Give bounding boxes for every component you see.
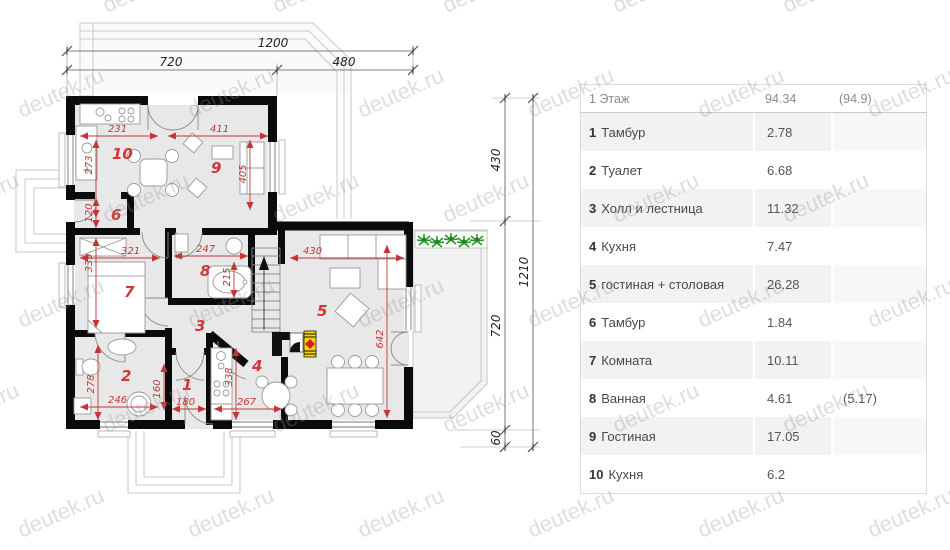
coffee-table-room5 <box>330 268 360 288</box>
washer-room2 <box>127 392 151 416</box>
row-room-area-alt <box>833 455 926 493</box>
table-row: 7 Комната 10.11 <box>581 341 926 379</box>
dim-430i: 430 <box>303 246 322 257</box>
sink-room8 <box>226 238 242 254</box>
row-room-number: 7 <box>589 353 596 368</box>
row-room-area-alt <box>833 341 926 379</box>
dim-720-right: 720 <box>489 314 503 337</box>
room-label-10: 10 <box>112 145 133 163</box>
table-row: 8 Ванная 4.61 (5.17) <box>581 379 926 417</box>
dim-720-top: 720 <box>160 55 183 69</box>
row-room-area: 7.47 <box>755 227 831 265</box>
dining-table-room5 <box>327 356 383 417</box>
porch-bottom <box>128 431 240 493</box>
row-room-area-alt <box>833 265 926 303</box>
table-row: 9 Гостиная 17.05 <box>581 417 926 455</box>
dim-411: 411 <box>210 124 229 135</box>
table-row: 5 гостиная + столовая 26.28 <box>581 265 926 303</box>
row-room-number: 2 <box>589 163 596 178</box>
toilet-room2 <box>76 359 100 375</box>
row-room-number: 4 <box>589 239 596 254</box>
dim-1210: 1210 <box>517 256 531 287</box>
row-room-name: Тамбур <box>601 315 645 330</box>
dim-278: 278 <box>86 374 97 393</box>
dim-246: 246 <box>108 395 127 406</box>
row-room-number: 1 <box>589 125 596 140</box>
sink-room2 <box>74 398 91 414</box>
dim-60: 60 <box>489 430 503 446</box>
row-room-number: 10 <box>589 467 603 482</box>
row-room-name: Ванная <box>601 391 646 406</box>
row-room-name: Туалет <box>601 163 642 178</box>
room-label-7: 7 <box>124 283 135 301</box>
row-room-number: 6 <box>589 315 596 330</box>
dim-430: 430 <box>489 148 503 171</box>
washbasin-room2 <box>108 339 136 355</box>
area-table: 1 Этаж 94.34 (94.9) 1 Тамбур 2.78 2 Туал… <box>580 84 927 494</box>
row-room-area: 2.78 <box>755 113 831 151</box>
row-room-area-alt <box>833 303 926 341</box>
wardrobe-room7 <box>80 238 126 256</box>
floor-total-area: 94.34 <box>753 92 829 106</box>
dim-247: 247 <box>196 244 216 255</box>
dim-215: 215 <box>222 267 233 286</box>
dim-273: 273 <box>84 155 95 174</box>
row-room-area: 10.11 <box>755 341 831 379</box>
area-table-header: 1 Этаж 94.34 (94.9) <box>581 85 926 113</box>
row-room-area: 1.84 <box>755 303 831 341</box>
row-room-area-alt <box>833 417 926 455</box>
table-row: 4 Кухня 7.47 <box>581 227 926 265</box>
room-label-9: 9 <box>211 159 221 177</box>
row-room-area: 26.28 <box>755 265 831 303</box>
row-room-name: Комната <box>601 353 652 368</box>
row-room-name: Тамбур <box>601 125 645 140</box>
row-room-area-alt <box>833 227 926 265</box>
room-label-8: 8 <box>200 262 210 280</box>
floor-title: 1 Этаж <box>581 92 753 106</box>
dim-480: 480 <box>333 55 356 69</box>
row-room-area: 11.32 <box>755 189 831 227</box>
dim-231: 231 <box>108 124 127 135</box>
row-room-area: 17.05 <box>755 417 831 455</box>
row-room-name: Гостиная <box>601 429 656 444</box>
room-label-1: 1 <box>182 376 192 394</box>
bed-room7 <box>88 262 145 333</box>
row-room-number: 5 <box>589 277 596 292</box>
table-row: 2 Туалет 6.68 <box>581 151 926 189</box>
table-row: 10 Кухня 6.2 <box>581 455 926 493</box>
floor-total-area-alt: (94.9) <box>829 92 926 106</box>
row-room-area-alt <box>833 151 926 189</box>
dim-180: 180 <box>176 397 195 408</box>
dim-321: 321 <box>121 246 140 257</box>
row-room-name: Кухня <box>608 467 643 482</box>
porch-left <box>16 170 66 252</box>
dim-642: 642 <box>375 329 386 348</box>
dim-339: 339 <box>84 253 95 272</box>
coffee-table-room9 <box>212 146 233 159</box>
row-room-number: 9 <box>589 429 596 444</box>
table-row: 3 Холл и лестница 11.32 <box>581 189 926 227</box>
row-room-area-alt <box>833 113 926 151</box>
dim-1200: 1200 <box>258 36 289 50</box>
floor-plan: 231 411 273 405 120 321 339 247 215 430 … <box>0 0 570 550</box>
dim-405: 405 <box>238 164 249 183</box>
watermark-text: deutek.ru <box>779 0 873 19</box>
row-room-area-alt: (5.17) <box>833 379 926 417</box>
row-room-name: гостиная + столовая <box>601 277 724 292</box>
row-room-name: Кухня <box>601 239 636 254</box>
row-room-area: 6.68 <box>755 151 831 189</box>
dim-267: 267 <box>237 397 257 408</box>
room-label-4: 4 <box>251 357 262 375</box>
row-room-area: 4.61 <box>755 379 831 417</box>
room-label-6: 6 <box>111 206 121 224</box>
area-table-body: 1 Тамбур 2.78 2 Туалет 6.68 3 Холл и лес… <box>581 113 926 493</box>
watermark-text: deutek.ru <box>609 0 703 19</box>
dim-120: 120 <box>84 203 95 222</box>
terrace-right <box>413 230 487 418</box>
room-label-3: 3 <box>195 317 205 335</box>
table-row: 1 Тамбур 2.78 <box>581 113 926 151</box>
washbasin-room8 <box>175 234 188 252</box>
room-label-2: 2 <box>121 367 131 385</box>
row-room-number: 3 <box>589 201 596 216</box>
table-row: 6 Тамбур 1.84 <box>581 303 926 341</box>
dim-338: 338 <box>224 367 235 386</box>
room-label-5: 5 <box>317 302 327 320</box>
dim-160: 160 <box>152 379 163 398</box>
row-room-number: 8 <box>589 391 596 406</box>
row-room-name: Холл и лестница <box>601 201 703 216</box>
row-room-area-alt <box>833 189 926 227</box>
row-room-area: 6.2 <box>755 455 831 493</box>
